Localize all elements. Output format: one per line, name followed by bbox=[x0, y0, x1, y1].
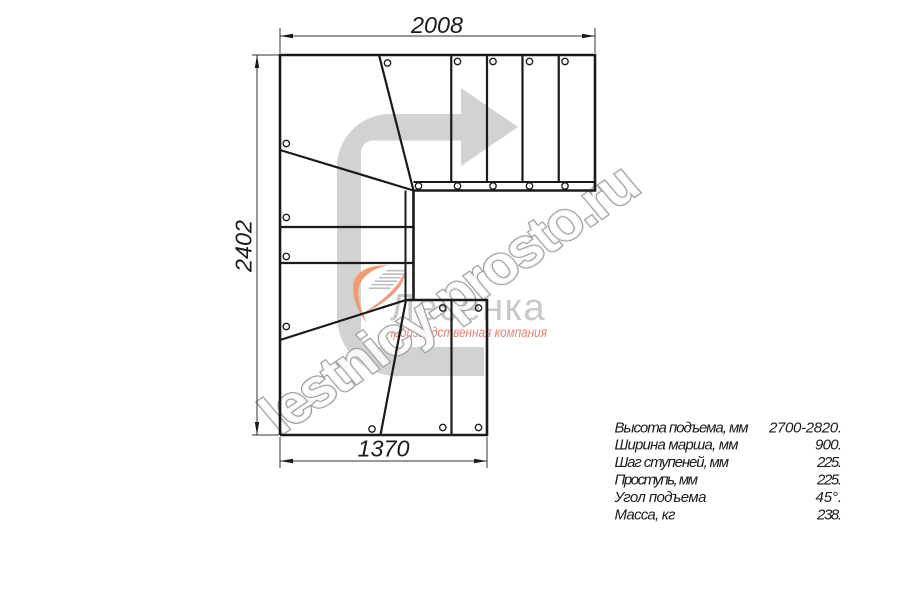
svg-text:2008: 2008 bbox=[410, 12, 463, 38]
svg-text:Высота подъема, мм: Высота подъема, мм bbox=[615, 419, 749, 436]
svg-text:900.: 900. bbox=[815, 437, 842, 454]
svg-text:1370: 1370 bbox=[357, 436, 409, 462]
svg-text:238.: 238. bbox=[816, 506, 842, 523]
svg-text:225.: 225. bbox=[816, 454, 842, 471]
svg-text:Ширина марша, мм: Ширина марша, мм bbox=[615, 437, 739, 454]
svg-text:Шаг ступеней, мм: Шаг ступеней, мм bbox=[615, 454, 730, 471]
svg-text:Проступь, мм: Проступь, мм bbox=[615, 472, 699, 489]
svg-text:Масса, кг: Масса, кг bbox=[615, 506, 677, 523]
svg-text:2402: 2402 bbox=[231, 220, 257, 273]
svg-text:2700-2820.: 2700-2820. bbox=[768, 419, 842, 436]
svg-text:225.: 225. bbox=[816, 472, 842, 489]
svg-text:45°.: 45°. bbox=[816, 489, 843, 506]
svg-text:Угол подъема: Угол подъема bbox=[614, 489, 707, 506]
